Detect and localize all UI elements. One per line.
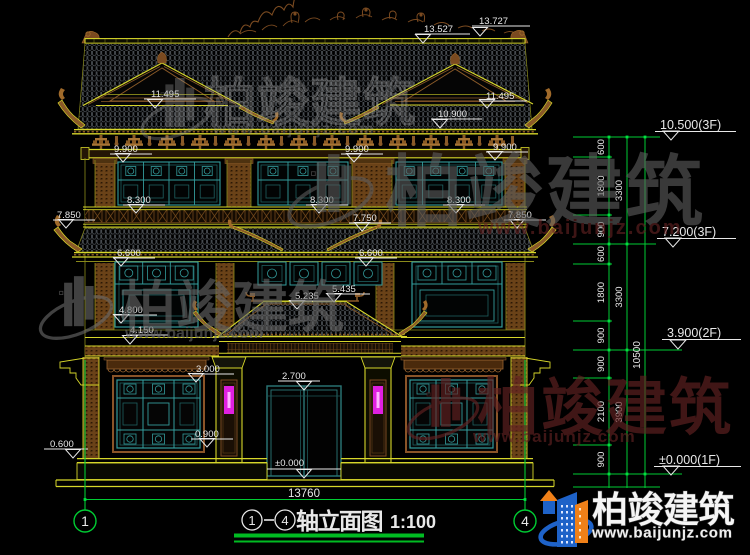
- svg-text:轴立面图: 轴立面图: [296, 508, 383, 534]
- svg-text:2.700: 2.700: [282, 371, 306, 382]
- svg-text:10.900: 10.900: [438, 109, 467, 120]
- svg-text:3.900(2F): 3.900(2F): [667, 326, 721, 340]
- svg-text:1800: 1800: [596, 282, 607, 303]
- svg-text:13760: 13760: [288, 488, 320, 500]
- svg-text:www.baijunjz.com: www.baijunjz.com: [212, 121, 375, 138]
- svg-text:1:100: 1:100: [390, 512, 436, 532]
- svg-text:900: 900: [596, 328, 607, 344]
- svg-text:4: 4: [521, 513, 529, 529]
- svg-text:±0.000: ±0.000: [275, 458, 304, 469]
- svg-text:900: 900: [596, 452, 607, 468]
- svg-text:3300: 3300: [614, 286, 625, 307]
- svg-text:13.727: 13.727: [479, 16, 508, 27]
- svg-text:10.500(3F): 10.500(3F): [660, 118, 721, 132]
- svg-text:4: 4: [281, 513, 288, 528]
- svg-text:±0.000(1F): ±0.000(1F): [659, 453, 720, 467]
- svg-text:www.baijunjz.com: www.baijunjz.com: [591, 525, 732, 542]
- svg-text:0.600: 0.600: [50, 439, 74, 450]
- svg-text:www.baijunjz.com: www.baijunjz.com: [477, 217, 683, 239]
- svg-text:10500: 10500: [632, 341, 643, 369]
- svg-text:www.baijunjz.com: www.baijunjz.com: [124, 325, 263, 342]
- svg-text:600: 600: [596, 246, 607, 262]
- svg-text:1: 1: [248, 513, 255, 528]
- svg-text:1: 1: [81, 513, 89, 529]
- svg-text:11.495: 11.495: [486, 91, 514, 102]
- svg-text:900: 900: [596, 356, 607, 372]
- svg-text:www.baijunjz.com: www.baijunjz.com: [472, 427, 636, 446]
- svg-text:13.527: 13.527: [424, 24, 453, 35]
